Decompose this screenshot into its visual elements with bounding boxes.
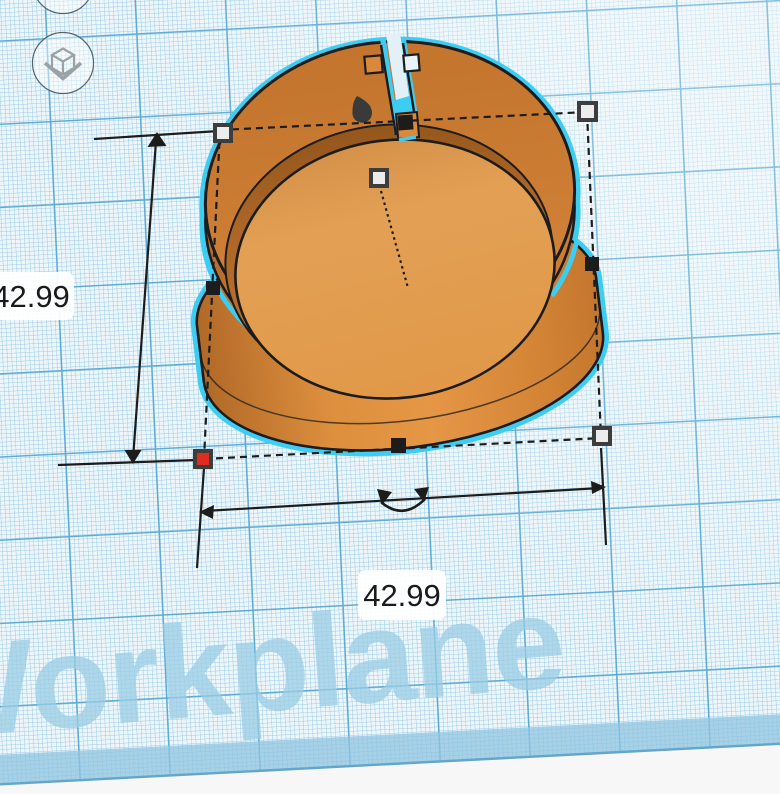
svg-text:42.99: 42.99 (363, 578, 441, 613)
svg-text:42.99: 42.99 (0, 279, 70, 314)
